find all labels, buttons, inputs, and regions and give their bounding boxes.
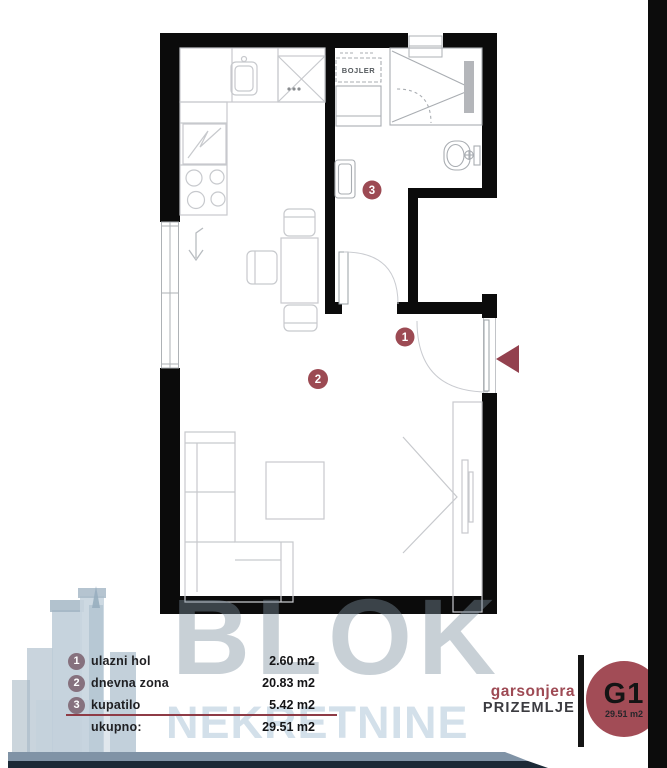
room-markers: 1 2 3 [308, 181, 415, 390]
marker-3: 3 [363, 181, 382, 200]
legend-label-2: dnevna zona [91, 676, 169, 690]
legend-total-label: ukupno: [91, 720, 142, 734]
entry-arrow-icon [496, 345, 519, 373]
legend-circle-3: 3 [68, 697, 85, 714]
walls [160, 33, 497, 614]
svg-text:2: 2 [315, 374, 321, 386]
coffee-table [266, 462, 324, 519]
wall-notch-left [408, 198, 418, 302]
direction-arrow [189, 228, 203, 260]
dining-set [247, 209, 318, 331]
kitchen [180, 48, 325, 215]
wall-notch-top [408, 188, 497, 198]
legend-circle-2: 2 [68, 675, 85, 692]
entrance-door [417, 318, 496, 393]
legend-label-3: kupatilo [91, 698, 141, 712]
unit-code: G1 [604, 680, 645, 709]
unit-type-label: garsonjera [491, 684, 575, 700]
wall-right-lower [482, 393, 497, 596]
chair-top [284, 209, 315, 236]
bathroom-door-swing [344, 252, 398, 304]
legend-circle-1: 1 [68, 653, 85, 670]
bathroom-door-leaf [339, 252, 348, 304]
legend-value-2: 20.83 m2 [190, 676, 315, 690]
wall-right-upper [482, 48, 497, 198]
kitchen-counter-side [180, 102, 227, 215]
svg-text:1: 1 [402, 332, 409, 344]
unit-area: 29.51 m2 [605, 709, 643, 720]
toilet [444, 141, 480, 170]
dining-table [281, 238, 318, 303]
marker-1: 1 [396, 328, 415, 347]
windows [162, 36, 443, 368]
legend-value-3: 5.42 m2 [190, 698, 315, 712]
unit-floor-label: PRIZEMLJE [483, 701, 575, 716]
wall-interior-vertical [325, 48, 335, 302]
chair-left [247, 251, 277, 284]
floor-plan: BOJLER [0, 0, 667, 768]
wall-top-right [443, 33, 497, 48]
badge-divider-bar [578, 655, 584, 747]
chair-bottom [284, 305, 317, 331]
bathroom: BOJLER [335, 48, 482, 198]
wall-notch-bottom [397, 302, 497, 314]
wardrobe-door-swing [403, 437, 457, 553]
floorplan-page: BOJLER [0, 0, 667, 768]
washing-machine [336, 86, 381, 126]
bottom-band [8, 752, 548, 768]
legend-total-value: 29.51 m2 [190, 720, 315, 734]
bathroom-door [339, 252, 398, 304]
boiler-label: BOJLER [342, 66, 376, 75]
right-edge-strip [648, 0, 667, 768]
wall-left-lower [160, 368, 180, 596]
stove [186, 170, 225, 209]
legend-value-1: 2.60 m2 [190, 654, 315, 668]
wall-top-left [160, 33, 408, 48]
faucet-icon [242, 57, 247, 62]
legend-divider [66, 714, 337, 716]
legend-label-1: ulazni hol [91, 654, 151, 668]
entrance-door-swing [417, 321, 488, 392]
shower [390, 48, 482, 125]
marker-2: 2 [308, 369, 328, 389]
shower-glass [464, 61, 474, 113]
entrance-door-leaf [484, 320, 489, 391]
svg-text:3: 3 [369, 185, 375, 197]
wall-left-upper [160, 48, 180, 222]
